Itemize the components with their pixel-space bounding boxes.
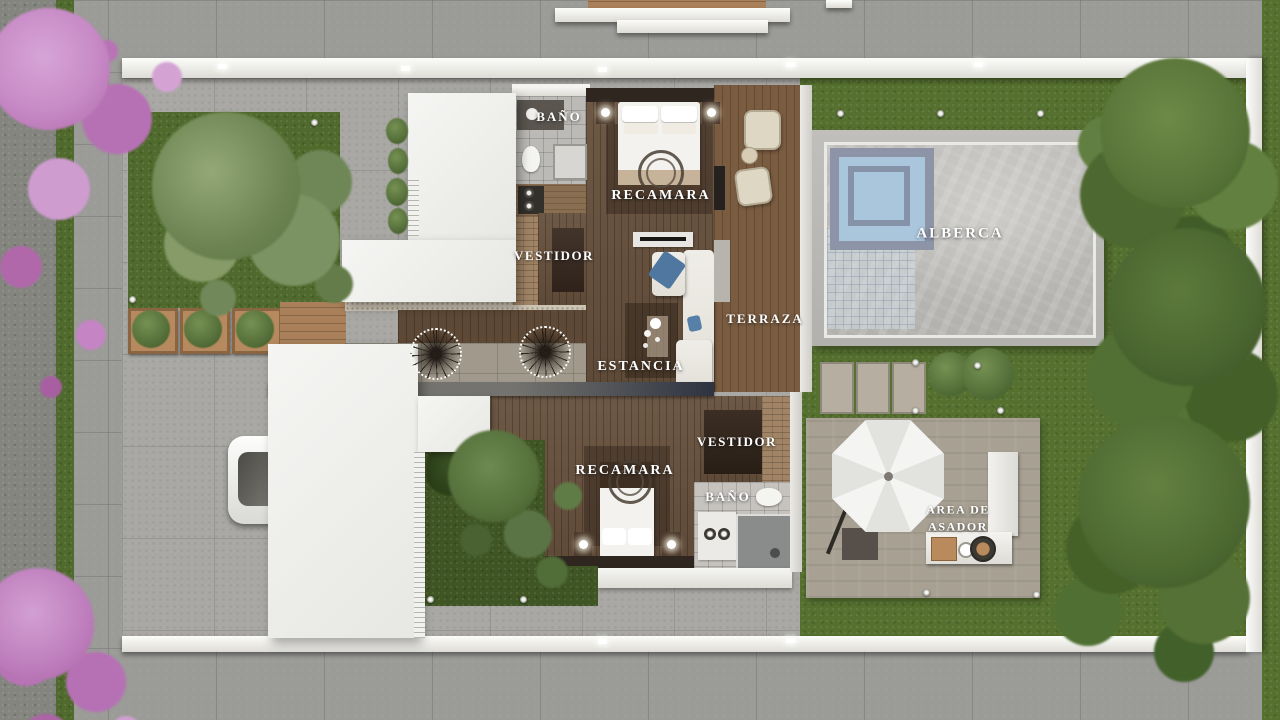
upper-bath-shower-tray [553,144,587,180]
floor-plan-render: BAÑO RECAMARA VESTIDOR TERRAZA ESTANCIA … [0,0,1280,720]
roof-side-plant [386,118,408,144]
wall-light [401,66,410,71]
lower-bath-shower [736,514,792,570]
umbrella-hub [884,472,893,481]
backyard-forest [1100,58,1250,208]
wall-light [598,67,607,72]
neighbor-wall-piece [826,0,852,8]
terrace-armchair [744,110,781,150]
lower-east-eave [790,392,802,572]
lower-bath-toilet [756,488,782,506]
garden-spot-light [912,359,919,366]
stepping-paver [856,362,890,414]
coffee-table-decor [650,318,661,329]
garden-spot-light [1033,591,1040,598]
room-label-upper-closet: VESTIDOR [514,248,594,264]
garage-roof [268,344,418,638]
stove-burner [524,188,534,198]
cutting-board [931,537,957,561]
neighbor-ledge-lower [617,20,768,33]
wall-light [786,62,795,67]
garden-spot-light [837,110,844,117]
backyard-forest [1078,416,1250,588]
bed-lamp [707,108,716,117]
bed-pillow [624,123,658,134]
vanity-basin [718,528,730,540]
room-label-grill-area-line1: AREA DE [926,503,990,518]
garden-spot-light [520,596,527,603]
dandelion-ornament [519,326,571,378]
terrace-pouf [741,147,758,164]
terrace-eave [800,85,812,392]
stove-burner [524,201,534,211]
backyard-forest [1108,228,1266,386]
living-terrace-divider [714,240,730,302]
round-grill [970,536,996,562]
planter-bush [236,310,274,348]
room-label-upper-bedroom: RECAMARA [611,188,710,204]
wall-tv [714,166,725,210]
room-label-living: ESTANCIA [597,359,684,375]
garden-spot-light [311,119,318,126]
bed-lamp [667,540,676,549]
garden-spot-light [219,297,226,304]
right-grass-strip [1262,0,1280,720]
planter-bush [132,310,170,348]
room-label-terrace: TERRAZA [726,311,804,327]
bed-pillow [662,123,696,134]
dandelion-ornament [410,328,462,380]
bed-pillow [622,106,658,122]
roof-stair-louver [408,176,419,236]
garden-spot-light [937,110,944,117]
upper-roof-step [342,240,516,302]
room-label-lower-closet: VESTIDOR [697,434,777,450]
bed-pillow [661,106,697,122]
wall-light [974,62,983,67]
shower-drain [770,548,780,558]
room-label-pool: ALBERCA [916,226,1003,243]
roof-side-plant [388,208,408,234]
room-label-lower-bath: BAÑO [705,489,751,505]
garden-spot-light [129,296,136,303]
front-yard-tree [152,112,300,260]
upper-roof-main [408,93,516,240]
garden-spot-light [129,119,136,126]
garden-spot-light [427,596,434,603]
wall-light [218,64,227,69]
roof-side-plant [388,148,408,174]
bed-lamp [579,540,588,549]
wall-light [598,639,607,644]
upper-bath-toilet [522,146,540,172]
room-label-lower-bedroom: RECAMARA [575,463,674,479]
garden-spot-light [923,589,930,596]
stepping-paver [892,362,926,414]
jacuzzi-inner-rim [848,166,910,226]
room-label-grill-area-line2: ASADOR [928,520,988,535]
sofa-blue-pillow [687,315,703,332]
grill-counter-vertical [988,452,1018,536]
planter-bush [184,310,222,348]
side-louver-fence [414,452,425,638]
bed-pillow [628,528,652,545]
terrace-armchair [734,166,774,208]
upper-unit-north-edge [512,84,590,96]
wall-light [786,638,795,643]
roof-side-plant [386,178,408,206]
garden-spot-light [997,407,1004,414]
tv-screen [640,237,686,241]
room-label-upper-bath: BAÑO [536,109,582,125]
courtyard-lawn-south [424,566,598,606]
bed-pillow [602,528,626,545]
garden-spot-light [912,407,919,414]
umbrella-base-mat [842,528,878,560]
upper-headboard-wall [586,88,714,102]
front-boundary-wall [122,58,1248,78]
bed-lamp [601,108,610,117]
entry-walkway [280,302,346,348]
vanity-basin [704,528,716,540]
backyard-bush [962,348,1014,400]
wall-light [1174,638,1183,643]
rear-boundary-wall [122,636,1248,652]
courtyard-tree [448,430,540,522]
lower-south-ledge [598,568,792,588]
garden-spot-light [974,362,981,369]
stepping-paver [820,362,854,414]
garden-spot-light [1037,110,1044,117]
